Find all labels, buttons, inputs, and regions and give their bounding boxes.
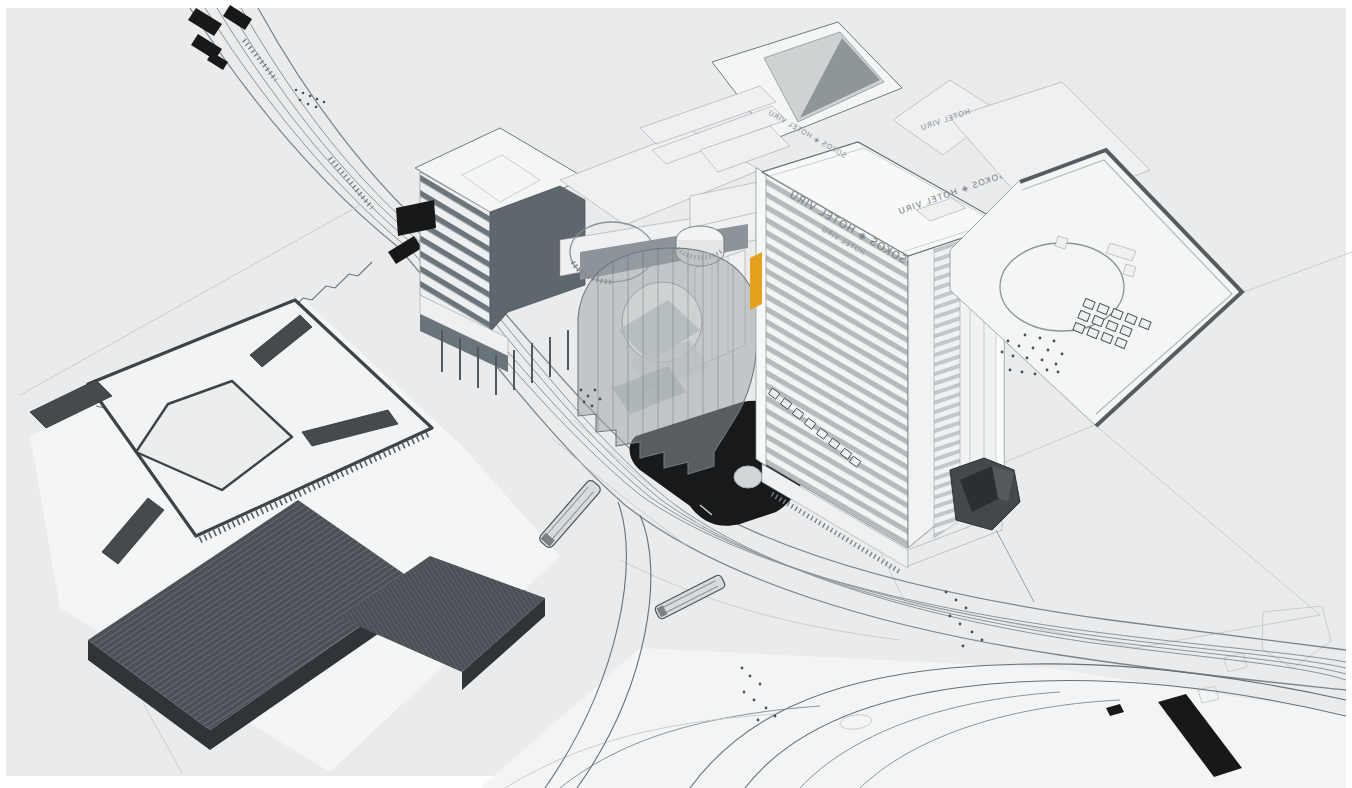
pool-dome [734, 466, 762, 488]
model-viewport[interactable]: SOKOS ◈ HOTEL VIRU HOTEL VIRU SOKOS ◈ HO… [0, 0, 1352, 788]
model-stage: SOKOS ◈ HOTEL VIRU HOTEL VIRU SOKOS ◈ HO… [0, 0, 1352, 788]
accent-strip [750, 252, 762, 310]
